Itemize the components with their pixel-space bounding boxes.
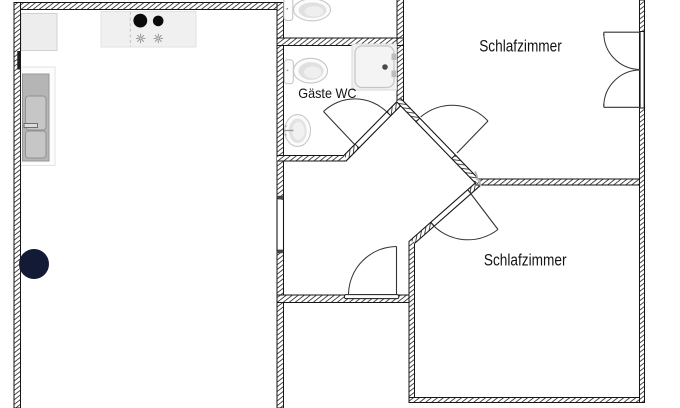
- svg-text:Gäste WC: Gäste WC: [298, 85, 356, 101]
- svg-text:Schlafzimmer: Schlafzimmer: [484, 252, 567, 270]
- svg-text:Schlafzimmer: Schlafzimmer: [479, 38, 562, 56]
